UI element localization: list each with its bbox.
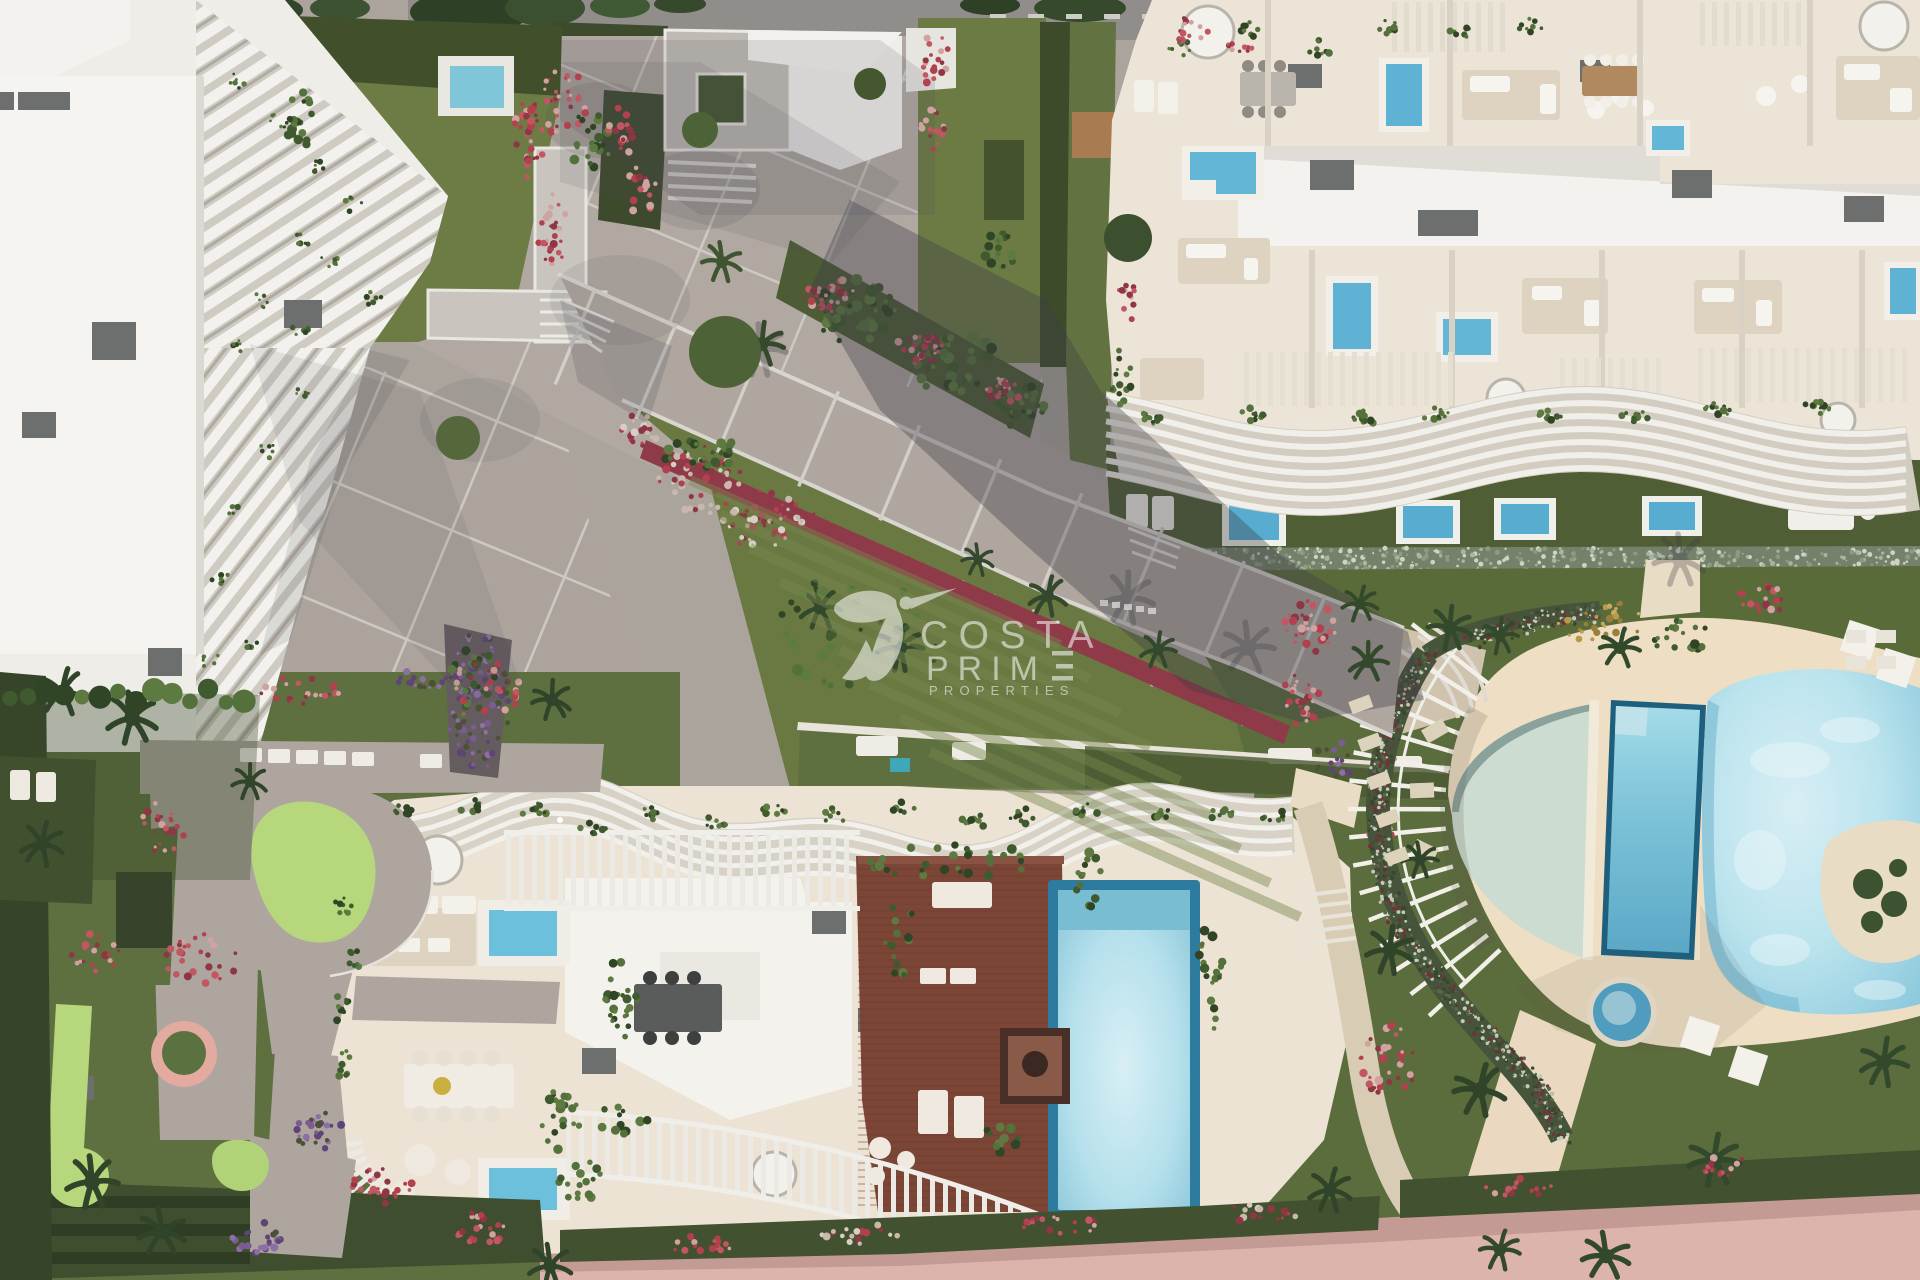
svg-text:PROPERTIES: PROPERTIES	[929, 683, 1075, 698]
